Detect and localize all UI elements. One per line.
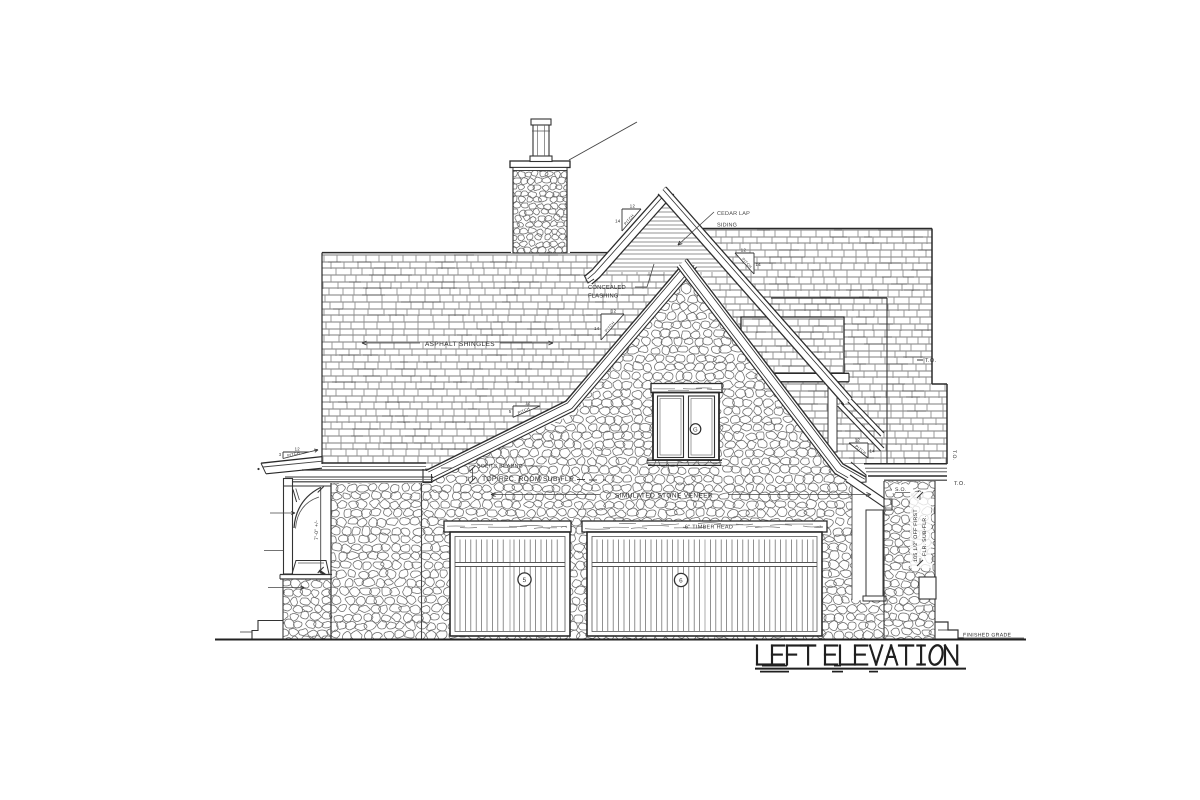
svg-text:5: 5 [509, 409, 512, 414]
svg-text:12: 12 [741, 248, 747, 253]
svg-text:ASPHALT SHINGLES: ASPHALT SHINGLES [425, 341, 495, 348]
svg-text:T.O.: T.O. [951, 450, 957, 460]
svg-text:5: 5 [523, 577, 527, 584]
svg-text:T.O.: T.O. [925, 358, 936, 364]
svg-text:7'-0" +/-: 7'-0" +/- [314, 520, 320, 540]
svg-text:TOP REC. ROOM SUB-FLR.: TOP REC. ROOM SUB-FLR. [482, 476, 576, 483]
svg-text:12: 12 [630, 204, 636, 209]
svg-text:12: 12 [465, 476, 470, 482]
svg-text:FLR. SUB-FLR.: FLR. SUB-FLR. [922, 516, 928, 556]
svg-text:6: 6 [679, 578, 683, 585]
svg-text:SIDING: SIDING [717, 223, 737, 229]
svg-text:14: 14 [594, 326, 600, 331]
svg-text:T.O.: T.O. [954, 481, 965, 487]
svg-text:FINISHED GRADE: FINISHED GRADE [963, 633, 1012, 639]
svg-text:CEDAR LAP: CEDAR LAP [717, 211, 750, 217]
svg-text:12: 12 [855, 438, 861, 443]
svg-text:14: 14 [756, 262, 762, 267]
svg-text:6" TIMBER HEAD: 6" TIMBER HEAD [685, 525, 733, 531]
svg-text:G: G [693, 427, 698, 434]
svg-text:SOFITS BEARNG: SOFITS BEARNG [477, 464, 523, 470]
svg-text:FLASHING: FLASHING [588, 293, 619, 300]
svg-text:14: 14 [870, 448, 876, 453]
svg-text:SIMULATED STONE VENEER: SIMULATED STONE VENEER [615, 493, 713, 500]
svg-text:12: 12 [525, 401, 531, 406]
svg-text:12: 12 [611, 309, 617, 314]
svg-text:105 1/2" OFF FIRST: 105 1/2" OFF FIRST [913, 509, 919, 562]
svg-text:14: 14 [615, 219, 621, 224]
svg-text:S.O.: S.O. [895, 487, 907, 493]
svg-text:CONCEALED: CONCEALED [588, 284, 626, 291]
svg-text:3: 3 [279, 452, 282, 457]
